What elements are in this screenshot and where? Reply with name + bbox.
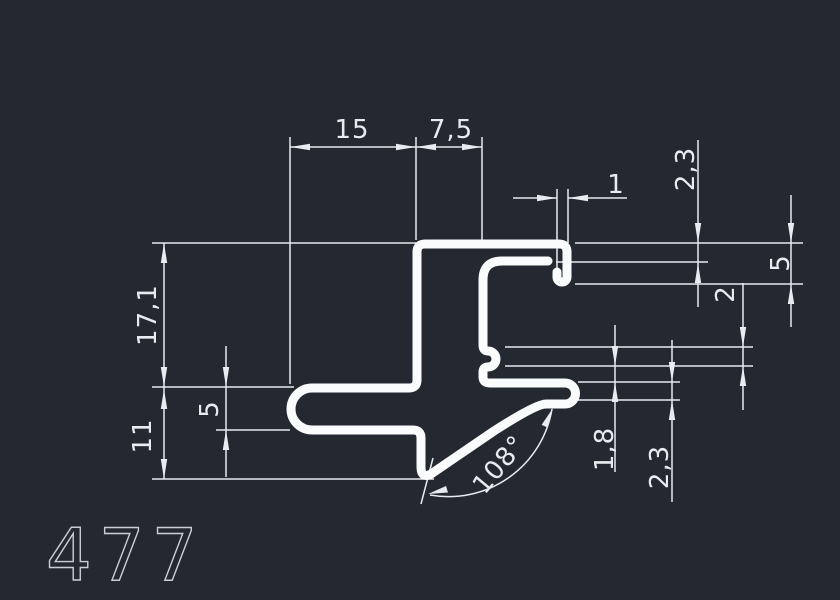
arrowhead: [223, 430, 229, 450]
arrowhead: [695, 223, 701, 243]
dim-overall-height: 17,1: [133, 284, 163, 346]
dim-top-inset: 7,5: [429, 115, 473, 145]
part-number: 477: [46, 513, 204, 597]
arrowhead: [695, 263, 701, 283]
dim-left-arm-thickness: 5: [195, 400, 225, 418]
arrowhead: [161, 367, 167, 387]
arrowhead: [223, 367, 229, 387]
arrowhead: [788, 223, 794, 243]
cad-drawing: 15 7,5 1 2,3 5 2 17,1 5 11 1,8 2,3 108° …: [0, 0, 840, 600]
arrowhead: [612, 346, 618, 366]
arrowhead: [788, 284, 794, 304]
arrowhead-angle-high: [542, 408, 553, 428]
dim-gap: 1,8: [590, 427, 620, 471]
extension-lines: [152, 137, 803, 504]
arrowhead: [161, 459, 167, 479]
drawing-canvas: 15 7,5 1 2,3 5 2 17,1 5 11 1,8 2,3 108° …: [0, 0, 840, 600]
dimension-labels: 15 7,5 1 2,3 5 2 17,1 5 11 1,8 2,3 108°: [128, 115, 796, 500]
dim-nub-height: 2: [711, 285, 741, 303]
arrowhead: [740, 327, 746, 347]
arrowhead: [161, 389, 167, 409]
arrowhead: [568, 195, 588, 201]
arrowhead: [669, 400, 675, 420]
dim-top-width: 15: [334, 115, 369, 145]
dim-hook-depth: 5: [766, 254, 796, 272]
dim-top-wall: 2,3: [671, 147, 701, 191]
dim-right-arm-thickness: 2,3: [645, 445, 675, 489]
arrowhead: [537, 195, 557, 201]
profile-outline: [291, 244, 576, 475]
arrowhead: [161, 243, 167, 263]
arrowhead: [740, 366, 746, 386]
arrowhead: [612, 382, 618, 402]
dim-lower-height: 11: [128, 418, 158, 453]
dim-lip-thickness: 1: [607, 170, 625, 200]
arrowhead: [669, 362, 675, 382]
arrowhead: [396, 144, 416, 150]
arrowhead: [290, 144, 310, 150]
arrowhead-angle-low: [428, 486, 448, 494]
